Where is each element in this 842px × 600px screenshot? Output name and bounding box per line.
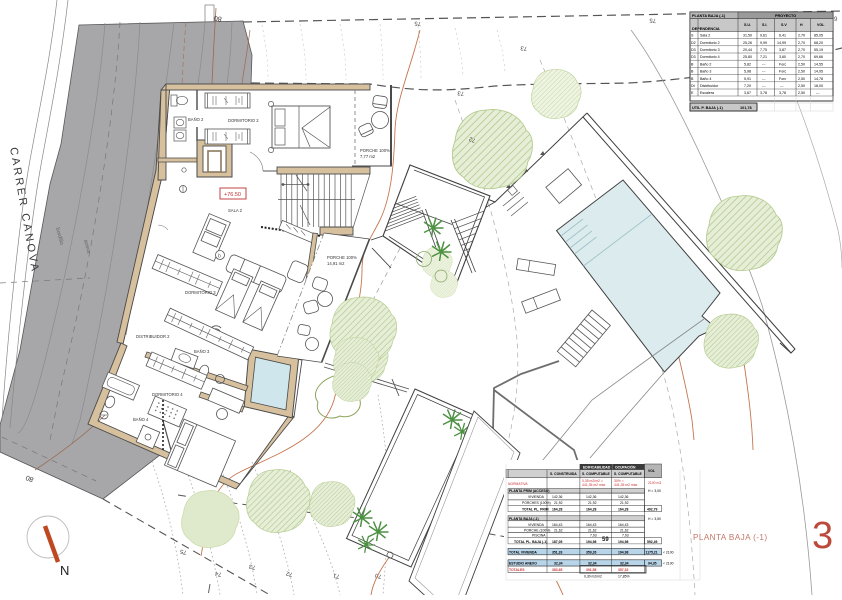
- svg-text:PORCHES (100%): PORCHES (100%): [522, 501, 551, 505]
- svg-text:2,50: 2,50: [798, 84, 805, 88]
- svg-text:21,62: 21,62: [620, 529, 629, 533]
- svg-text:75: 75: [649, 17, 657, 23]
- svg-text:Forc: Forc: [779, 77, 786, 81]
- svg-text:ESTUDIO ANEXO: ESTUDIO ANEXO: [509, 562, 537, 566]
- svg-text:2,70: 2,70: [798, 34, 805, 38]
- svg-text:S.U.: S.U.: [744, 23, 751, 27]
- svg-text:Dormitorio 3: Dormitorio 3: [700, 48, 720, 52]
- svg-text:Baño 2: Baño 2: [700, 62, 711, 66]
- svg-text:PORCHE (100%): PORCHE (100%): [524, 529, 550, 533]
- svg-text:BAÑO 2: BAÑO 2: [188, 117, 204, 122]
- svg-text:PLANTA PRIM (ACCESO): PLANTA PRIM (ACCESO): [509, 489, 550, 493]
- svg-text:< 2100: < 2100: [663, 550, 674, 554]
- svg-text:0,30 m2/m2: 0,30 m2/m2: [584, 575, 602, 579]
- svg-text:Dormitorio 2: Dormitorio 2: [700, 41, 720, 45]
- svg-text:164,28: 164,28: [552, 507, 562, 511]
- svg-text:5,98: 5,98: [744, 70, 751, 74]
- svg-text:H = 3,50: H = 3,50: [648, 517, 661, 521]
- svg-text:Sala 2: Sala 2: [700, 34, 710, 38]
- svg-text:7,21: 7,21: [760, 55, 767, 59]
- svg-text:OCUPACIÓN: OCUPACIÓN: [615, 464, 636, 469]
- svg-text:1175,21: 1175,21: [646, 550, 658, 554]
- svg-text:PROYECTO: PROYECTO: [775, 14, 796, 18]
- svg-text:Forc: Forc: [779, 70, 786, 74]
- svg-text:TOTALES: TOTALES: [509, 568, 525, 572]
- svg-text:S.I.: S.I.: [762, 23, 767, 27]
- svg-text:164,43: 164,43: [552, 523, 562, 527]
- svg-text:DORMITORIO 3: DORMITORIO 3: [185, 290, 216, 295]
- svg-text:75: 75: [414, 20, 422, 26]
- svg-text:2100 m3: 2100 m3: [648, 481, 661, 485]
- svg-text:7,77 m2: 7,77 m2: [360, 154, 376, 159]
- svg-text:187,05: 187,05: [552, 540, 562, 544]
- svg-text:S. COMPUTABLE: S. COMPUTABLE: [614, 472, 643, 476]
- svg-text:94,35: 94,35: [648, 562, 657, 566]
- svg-text:69,66: 69,66: [814, 55, 823, 59]
- svg-text:3: 3: [812, 515, 833, 557]
- svg-text:BAÑO 4: BAÑO 4: [133, 417, 149, 422]
- svg-text:PLANTA BAJA (-1): PLANTA BAJA (-1): [693, 533, 768, 542]
- svg-text:Baño 3: Baño 3: [700, 70, 711, 74]
- svg-text:592,49: 592,49: [647, 540, 657, 544]
- svg-text:D2: D2: [691, 41, 696, 45]
- svg-text:14,55: 14,55: [814, 62, 823, 66]
- svg-text:351,33: 351,33: [552, 550, 562, 554]
- svg-text:VOL: VOL: [648, 469, 655, 473]
- svg-text:3,67: 3,67: [744, 91, 751, 95]
- svg-text:32,34: 32,34: [588, 562, 597, 566]
- svg-text:164,43: 164,43: [586, 523, 596, 527]
- svg-text:PORCHE 100%: PORCHE 100%: [327, 255, 357, 260]
- svg-text:3,78: 3,78: [779, 91, 786, 95]
- svg-text:14,78: 14,78: [814, 77, 823, 81]
- svg-text:DISTRIBUIDOR 2: DISTRIBUIDOR 2: [136, 334, 170, 339]
- svg-text:2,50: 2,50: [798, 77, 805, 81]
- svg-text:PLANTA BAJA (-1): PLANTA BAJA (-1): [509, 517, 539, 521]
- svg-text:142,36: 142,36: [552, 495, 562, 499]
- svg-text:7,93: 7,93: [622, 534, 629, 538]
- svg-text:DORMITORIO 4: DORMITORIO 4: [152, 392, 183, 397]
- svg-text:6,41: 6,41: [779, 34, 786, 38]
- svg-text:142,36: 142,36: [618, 495, 628, 499]
- svg-text:Baño 4: Baño 4: [700, 77, 711, 81]
- svg-text:21,92: 21,92: [588, 501, 597, 505]
- svg-text:BAÑO 3: BAÑO 3: [194, 349, 210, 354]
- svg-text:14,91 m2: 14,91 m2: [327, 261, 345, 266]
- svg-text:S. CONSTRUIDA: S. CONSTRUIDA: [550, 472, 577, 476]
- svg-text:PISCINA: PISCINA: [532, 534, 546, 538]
- svg-text:+76.50: +76.50: [224, 192, 241, 198]
- svg-text:2,50: 2,50: [798, 62, 805, 66]
- svg-text:142,36: 142,36: [586, 495, 596, 499]
- svg-text:UTIL P. BAJA (-1): UTIL P. BAJA (-1): [692, 106, 723, 110]
- svg-text:Distribuidor: Distribuidor: [700, 84, 719, 88]
- svg-text:194,98: 194,98: [618, 550, 628, 554]
- svg-text:3,78: 3,78: [760, 91, 767, 95]
- svg-text:2,70: 2,70: [798, 41, 805, 45]
- svg-text:7,20: 7,20: [744, 84, 751, 88]
- svg-text:Dt: Dt: [691, 84, 695, 88]
- svg-text:VIVIENDA: VIVIENDA: [528, 495, 545, 499]
- svg-text:TOTAL PL. PRIM: TOTAL PL. PRIM: [522, 507, 549, 511]
- svg-text:391,58: 391,58: [586, 568, 596, 572]
- svg-text:2,70: 2,70: [798, 55, 805, 59]
- svg-text:32,34: 32,34: [620, 562, 629, 566]
- svg-text:14,95: 14,95: [814, 70, 823, 74]
- svg-text:194,98: 194,98: [618, 540, 628, 544]
- svg-text:2,50: 2,50: [798, 70, 805, 74]
- svg-text:9,61: 9,61: [760, 34, 767, 38]
- svg-text:TOTAL VIVIENDA: TOTAL VIVIENDA: [509, 550, 537, 554]
- svg-text:359,26: 359,26: [586, 550, 596, 554]
- svg-text:b: b: [218, 254, 221, 260]
- svg-text:3,60: 3,60: [779, 55, 786, 59]
- svg-text:164,28: 164,28: [618, 507, 628, 511]
- svg-text:D3: D3: [691, 48, 696, 52]
- svg-text:NORMATIVA: NORMATIVA: [508, 482, 528, 486]
- svg-text:< 2100: < 2100: [663, 562, 674, 566]
- svg-text:14,99: 14,99: [777, 41, 786, 45]
- svg-text:101,78: 101,78: [740, 106, 752, 110]
- svg-text:441,35 m2 máx: 441,35 m2 máx: [614, 483, 638, 487]
- svg-text:VOL: VOL: [817, 23, 825, 27]
- svg-text:S.V: S.V: [781, 23, 787, 27]
- svg-text:357,32: 357,32: [618, 568, 628, 572]
- svg-text:25,80: 25,80: [743, 55, 752, 59]
- svg-text:383,65: 383,65: [552, 568, 562, 572]
- svg-text:VIVIENDA: VIVIENDA: [528, 523, 545, 527]
- svg-text:21,92: 21,92: [620, 501, 629, 505]
- svg-text:21,62: 21,62: [588, 529, 597, 533]
- svg-text:17,85%: 17,85%: [618, 575, 630, 579]
- svg-text:Escalera: Escalera: [700, 91, 714, 95]
- svg-text:32,34: 32,34: [554, 562, 563, 566]
- svg-text:25,26: 25,26: [743, 41, 752, 45]
- svg-text:PLANTA BAJA (-1): PLANTA BAJA (-1): [692, 14, 726, 18]
- svg-text:9,99: 9,99: [760, 41, 767, 45]
- svg-text:20,44: 20,44: [743, 48, 752, 52]
- svg-text:68,20: 68,20: [814, 41, 823, 45]
- svg-text:DEPENDENCIA: DEPENDENCIA: [692, 27, 720, 31]
- svg-text:441,35 m2 máx: 441,35 m2 máx: [582, 483, 606, 487]
- svg-text:85,05: 85,05: [814, 34, 823, 38]
- svg-text:164,28: 164,28: [586, 507, 596, 511]
- svg-text:194,98: 194,98: [586, 540, 596, 544]
- svg-text:H: H: [800, 23, 803, 27]
- svg-text:2,70: 2,70: [798, 48, 805, 52]
- svg-text:5,91: 5,91: [744, 77, 751, 81]
- svg-text:Dormitorio 4: Dormitorio 4: [700, 55, 720, 59]
- svg-text:N: N: [60, 563, 69, 578]
- svg-text:18,00: 18,00: [814, 84, 823, 88]
- svg-text:164,43: 164,43: [618, 523, 628, 527]
- svg-text:5,82: 5,82: [744, 62, 751, 66]
- svg-text:55,19: 55,19: [814, 48, 823, 52]
- svg-text:D3: D3: [691, 55, 696, 59]
- svg-text:7,75: 7,75: [760, 48, 767, 52]
- svg-text:59: 59: [602, 537, 609, 543]
- svg-text:EDIFICABILIDAD: EDIFICABILIDAD: [583, 465, 611, 469]
- svg-text:TOTAL PL. BAJA (-1): TOTAL PL. BAJA (-1): [514, 540, 547, 544]
- svg-text:31,50: 31,50: [743, 34, 752, 38]
- svg-text:492,79: 492,79: [647, 507, 657, 511]
- svg-text:Forc: Forc: [779, 62, 786, 66]
- svg-text:DORMITORIO 2: DORMITORIO 2: [228, 118, 259, 123]
- svg-text:S. COMPUTABLE: S. COMPUTABLE: [582, 472, 611, 476]
- svg-text:PORCHE 100%: PORCHE 100%: [360, 148, 390, 153]
- svg-text:80: 80: [214, 14, 223, 22]
- svg-text:2,50: 2,50: [798, 91, 805, 95]
- svg-text:3,87: 3,87: [779, 48, 786, 52]
- svg-text:21,92: 21,92: [554, 501, 563, 505]
- svg-text:7,93: 7,93: [590, 534, 597, 538]
- svg-text:21,62: 21,62: [554, 529, 563, 533]
- svg-text:H = 3,00: H = 3,00: [648, 489, 661, 493]
- svg-text:SALA 2: SALA 2: [228, 208, 243, 213]
